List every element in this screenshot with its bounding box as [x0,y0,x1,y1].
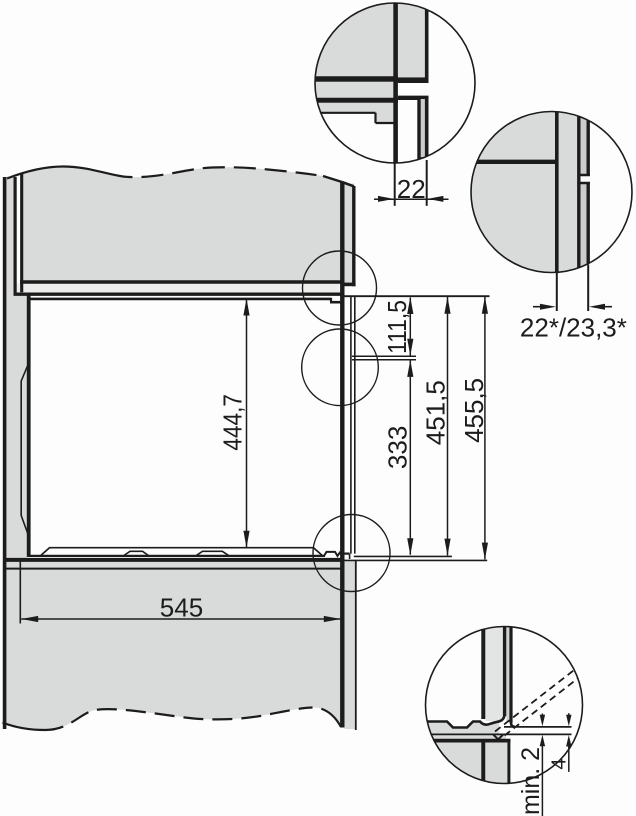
svg-text:333: 333 [383,426,413,469]
svg-text:455,5: 455,5 [459,378,489,443]
svg-text:4: 4 [548,758,570,769]
svg-text:22*/23,3*: 22*/23,3* [520,313,627,343]
svg-text:min. 2: min. 2 [517,747,545,815]
svg-text:545: 545 [160,593,203,623]
svg-text:451,5: 451,5 [420,380,450,445]
svg-text:111,5: 111,5 [384,300,413,354]
svg-text:22: 22 [397,174,426,204]
svg-text:444,7: 444,7 [219,394,248,451]
